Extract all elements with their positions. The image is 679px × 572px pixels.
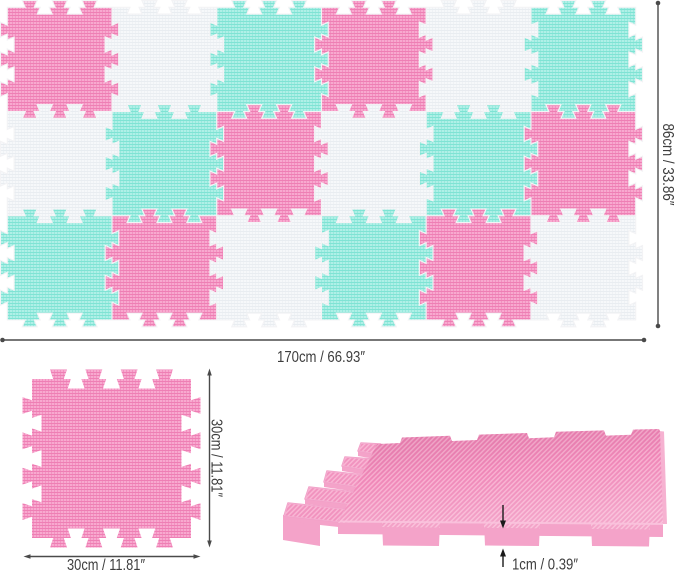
svg-text:170cm / 66.93″: 170cm / 66.93″ — [277, 349, 365, 366]
svg-text:1cm / 0.39″: 1cm / 0.39″ — [512, 557, 578, 572]
svg-text:30cm / 11.81″: 30cm / 11.81″ — [208, 419, 225, 497]
svg-text:86cm / 33.86″: 86cm / 33.86″ — [659, 124, 676, 206]
svg-text:30cm / 11.81″: 30cm / 11.81″ — [67, 557, 145, 572]
